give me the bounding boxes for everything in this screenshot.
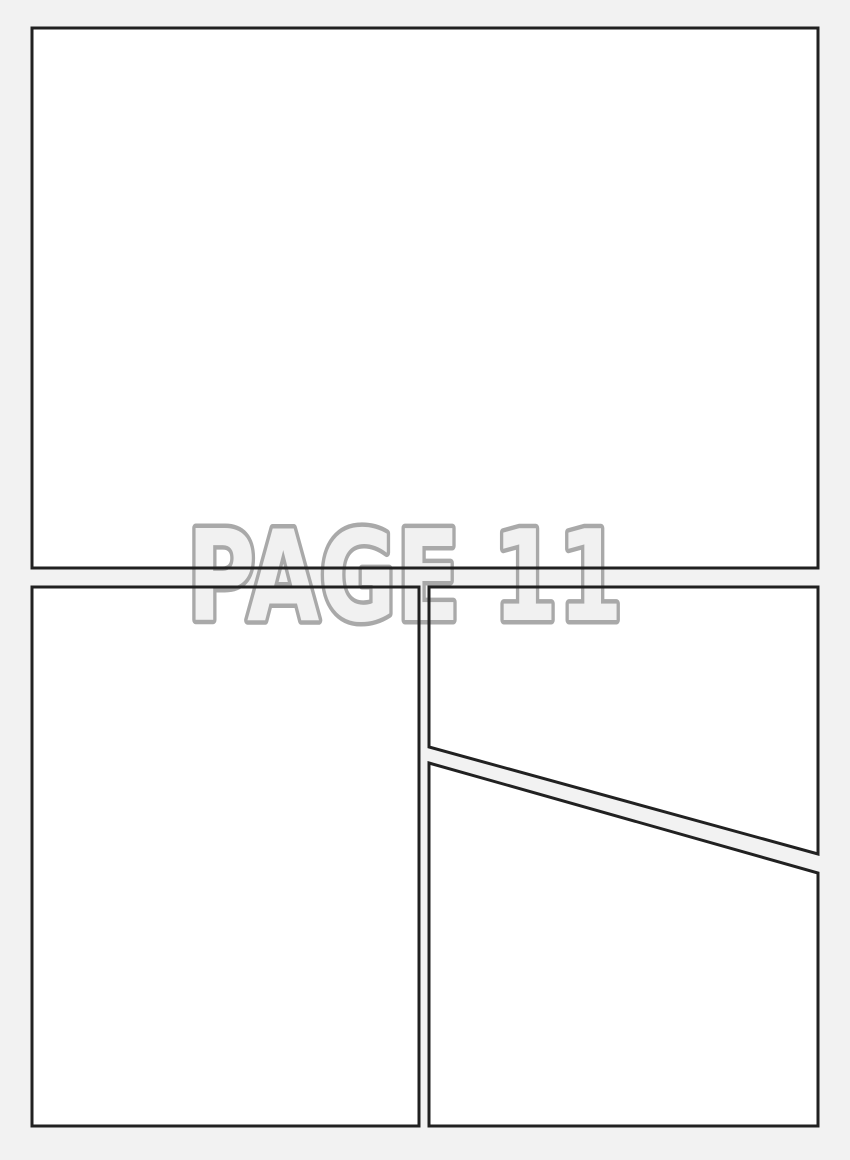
page-number-watermark: PAGE 11: [187, 503, 623, 650]
page-canvas: PAGE 11: [0, 0, 850, 1160]
comic-page-template: PAGE 11: [0, 0, 850, 1160]
bottom-left-panel-fill: [32, 587, 419, 1126]
top-panel-fill: [32, 28, 818, 568]
